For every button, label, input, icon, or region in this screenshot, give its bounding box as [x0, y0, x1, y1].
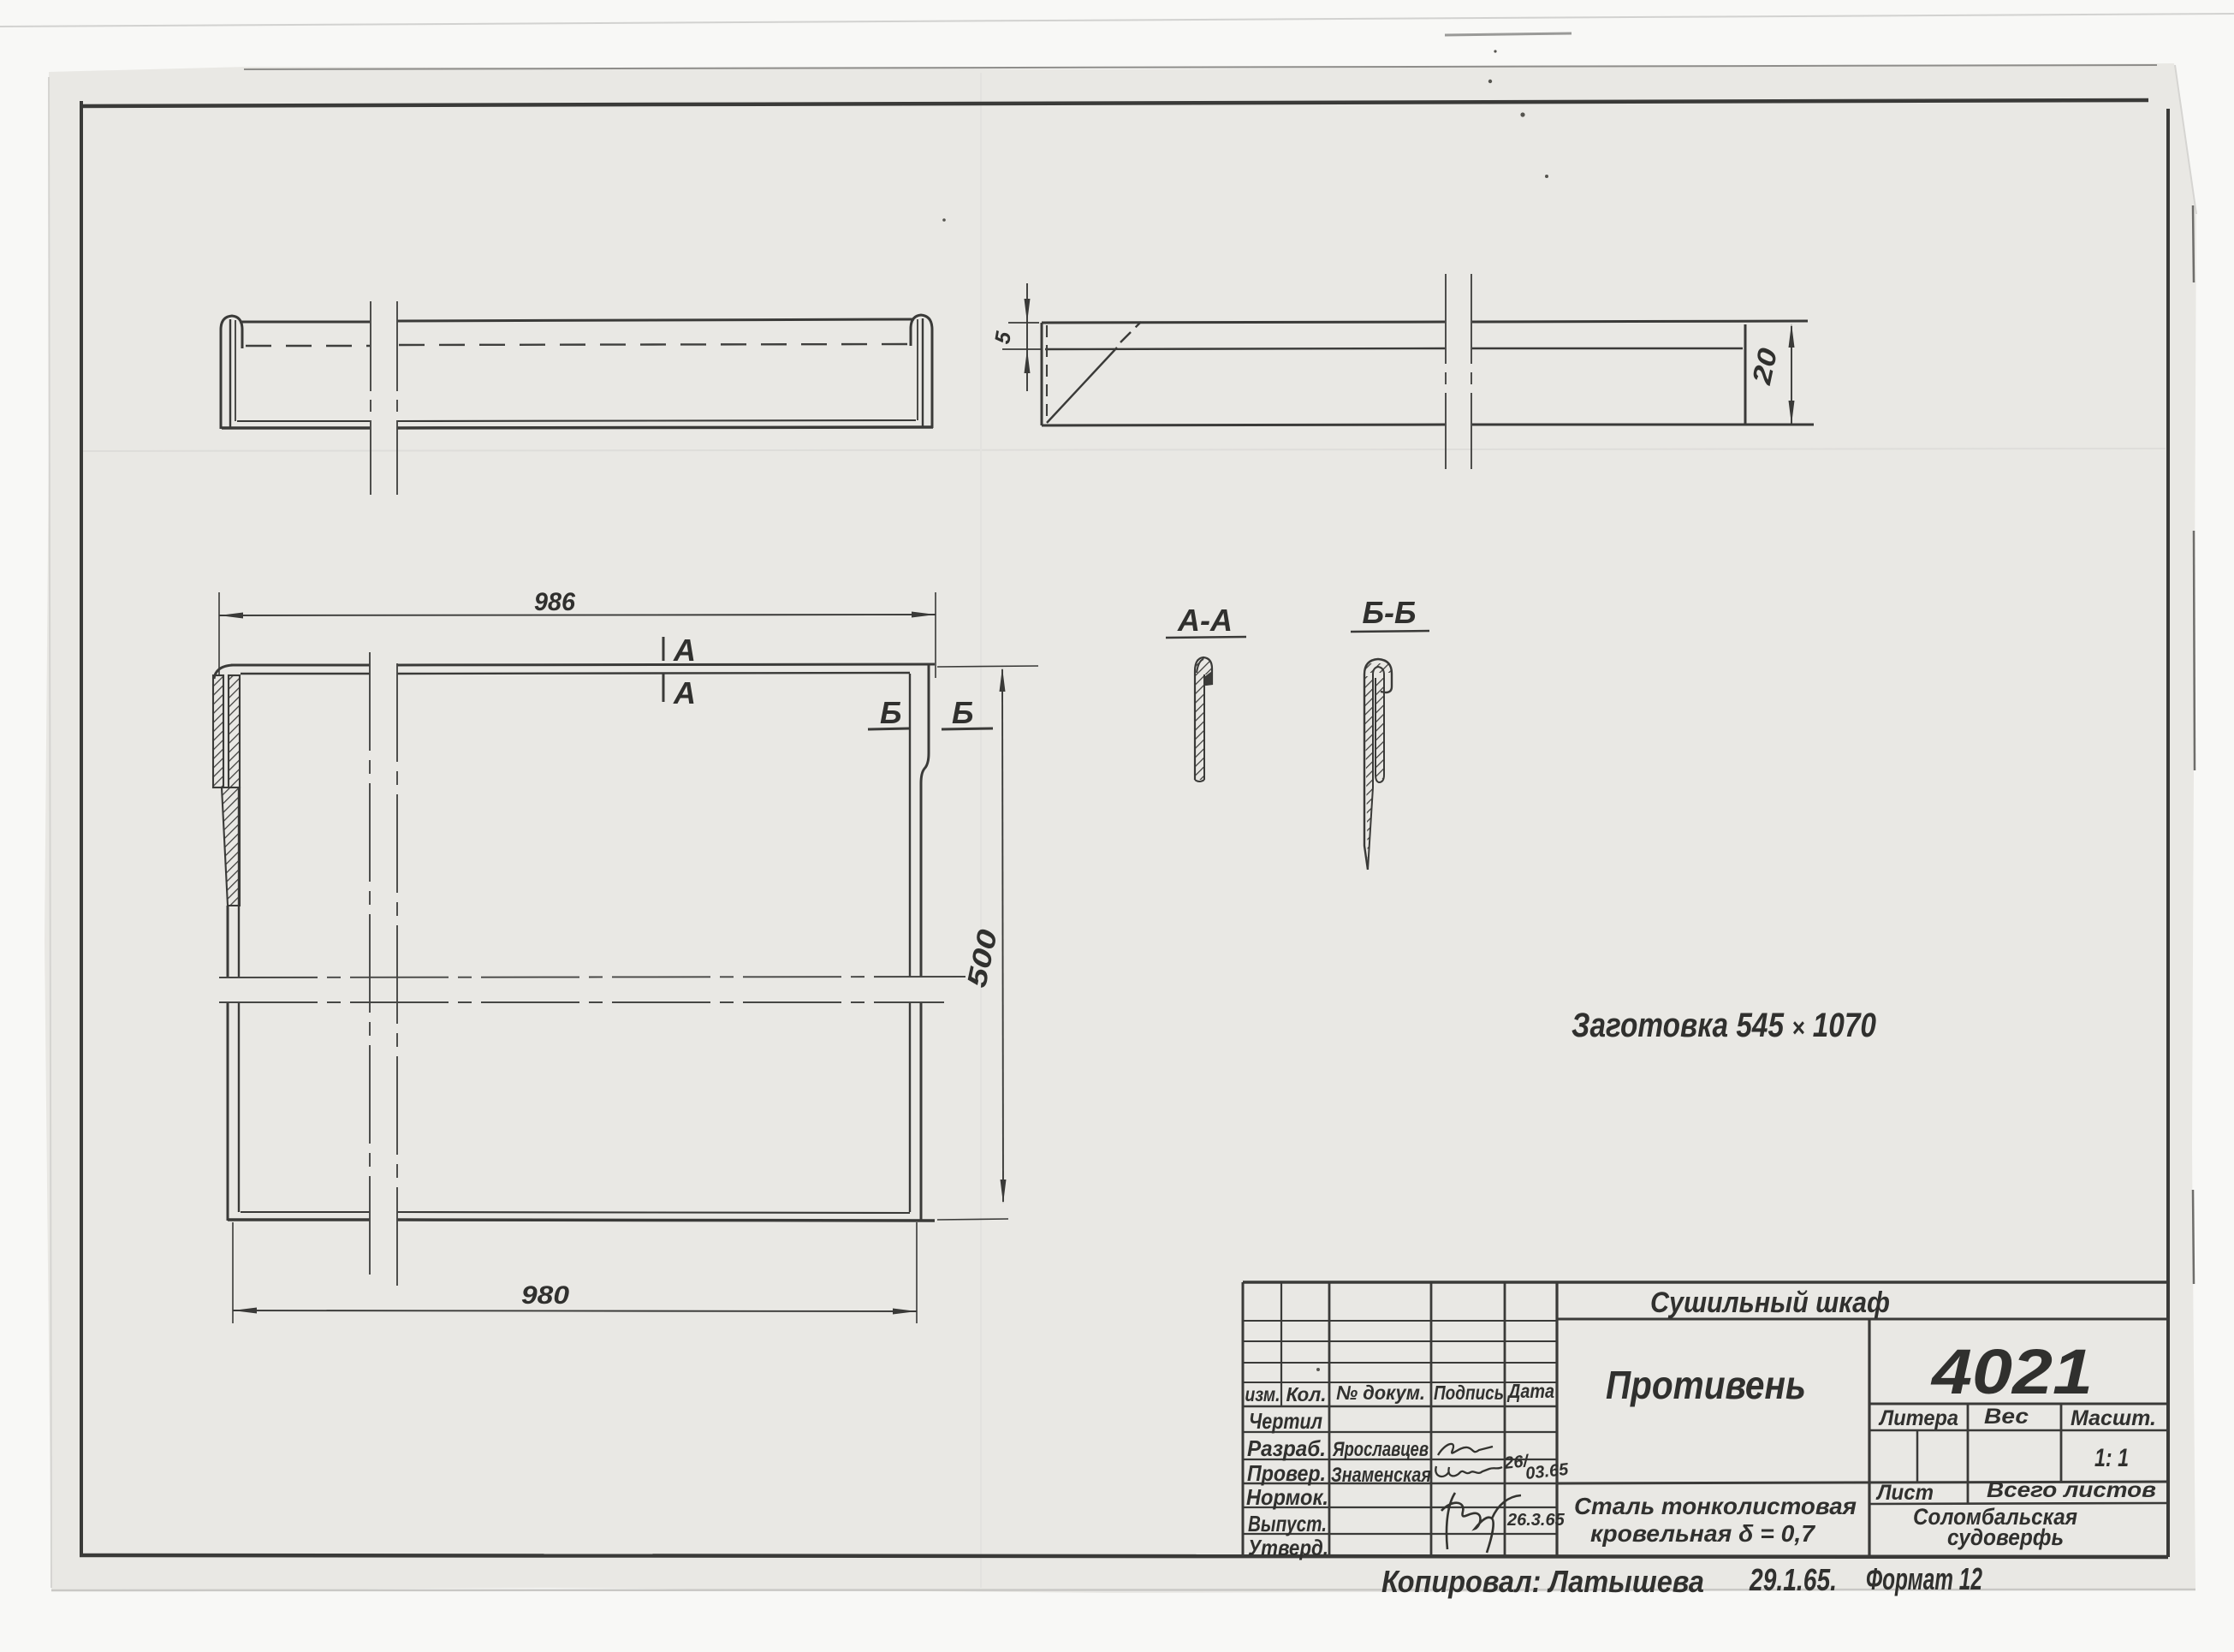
svg-text:26.3.65: 26.3.65 — [1506, 1511, 1566, 1530]
svg-text:кровельная δ = 0,7: кровельная δ = 0,7 — [1590, 1520, 1815, 1547]
svg-text:№ докум.: № докум. — [1336, 1382, 1425, 1404]
svg-text:Сталь тонколистовая: Сталь тонколистовая — [1574, 1493, 1857, 1519]
svg-text:А: А — [673, 675, 696, 710]
svg-text:Формат 12: Формат 12 — [1866, 1561, 1982, 1596]
svg-text:А: А — [673, 633, 696, 668]
svg-text:Чертил: Чертил — [1249, 1408, 1322, 1434]
svg-text:Заготовка 545 × 1070: Заготовка 545 × 1070 — [1572, 1007, 1876, 1044]
svg-text:Нормок.: Нормок. — [1246, 1484, 1328, 1510]
svg-text:Б: Б — [880, 695, 902, 730]
svg-text:Б-Б: Б-Б — [1363, 595, 1417, 630]
svg-text:судоверфь: судоверфь — [1947, 1524, 2064, 1550]
svg-text:Копировал: Латышева: Копировал: Латышева — [1381, 1564, 1704, 1599]
svg-text:Провер.: Провер. — [1247, 1460, 1326, 1486]
svg-text:изм.: изм. — [1245, 1383, 1280, 1405]
svg-text:Кол.: Кол. — [1286, 1383, 1327, 1405]
svg-text:Подпись: Подпись — [1434, 1382, 1504, 1404]
svg-text:Знаменская: Знаменская — [1331, 1464, 1431, 1487]
svg-text:4021: 4021 — [1930, 1336, 2093, 1407]
svg-text:Противень: Противень — [1606, 1363, 1806, 1407]
svg-text:986: 986 — [534, 588, 575, 616]
svg-text:Лист: Лист — [1875, 1481, 1934, 1505]
svg-text:Дата: Дата — [1506, 1380, 1554, 1402]
svg-text:Разраб.: Разраб. — [1247, 1435, 1326, 1461]
svg-text:Утверд.: Утверд. — [1248, 1535, 1328, 1560]
svg-text:Вес: Вес — [1984, 1405, 2029, 1429]
svg-text:А-А: А-А — [1177, 603, 1233, 638]
svg-text:980: 980 — [521, 1281, 569, 1310]
svg-text:Масшт.: Масшт. — [2071, 1406, 2156, 1430]
svg-text:Б: Б — [952, 695, 974, 730]
svg-text:Выпуст.: Выпуст. — [1248, 1511, 1327, 1536]
svg-text:Всего листов: Всего листов — [1987, 1478, 2156, 1502]
svg-text:Сушильный шкаф: Сушильный шкаф — [1650, 1287, 1890, 1319]
svg-text:Литера: Литера — [1878, 1406, 1958, 1430]
svg-text:29.1.65.: 29.1.65. — [1749, 1562, 1837, 1597]
svg-text:1: 1: 1: 1 — [2094, 1444, 2129, 1472]
svg-text:Ярославцев: Ярославцев — [1332, 1438, 1429, 1461]
